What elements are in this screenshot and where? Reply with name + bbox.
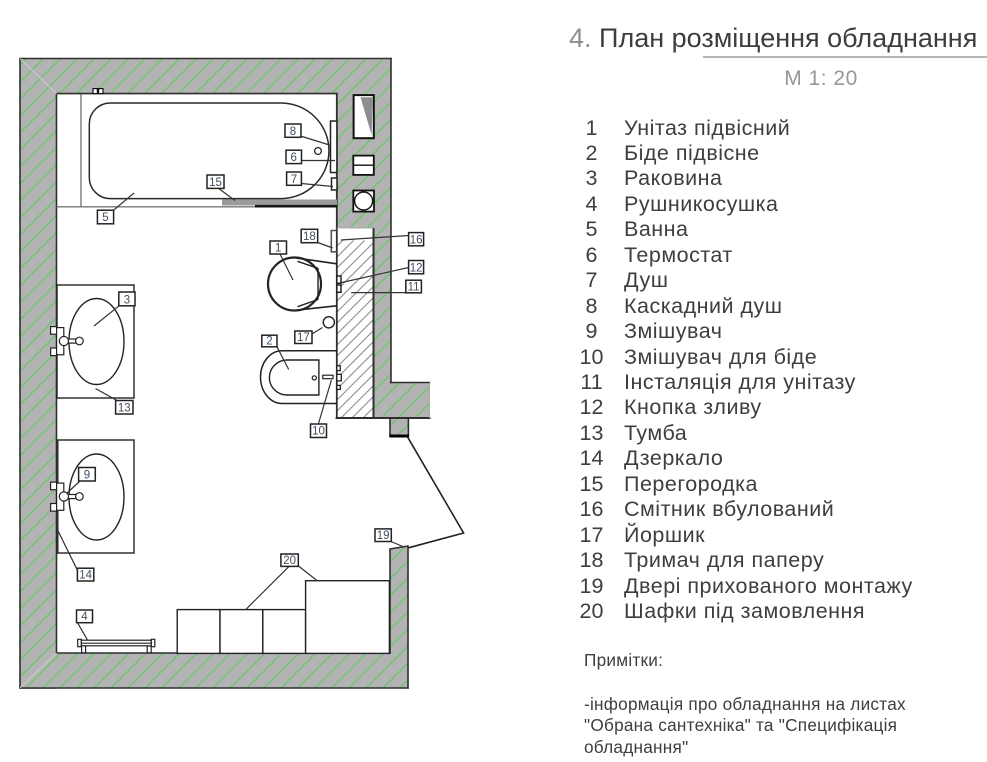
svg-text:9: 9 — [84, 470, 90, 482]
svg-text:20: 20 — [283, 555, 296, 567]
svg-text:12: 12 — [410, 262, 423, 274]
svg-text:14: 14 — [79, 570, 92, 582]
svg-text:19: 19 — [377, 530, 390, 542]
svg-text:3: 3 — [124, 294, 130, 306]
svg-text:18: 18 — [303, 231, 316, 243]
svg-text:7: 7 — [291, 174, 297, 186]
svg-text:8: 8 — [290, 126, 296, 138]
svg-text:6: 6 — [290, 152, 296, 164]
svg-text:11: 11 — [408, 281, 420, 293]
svg-text:2: 2 — [266, 335, 272, 347]
svg-text:5: 5 — [102, 212, 108, 224]
svg-text:1: 1 — [275, 243, 281, 255]
svg-text:17: 17 — [297, 332, 310, 344]
svg-text:10: 10 — [312, 426, 325, 438]
svg-text:15: 15 — [209, 177, 222, 189]
svg-text:13: 13 — [118, 403, 131, 415]
svg-text:4: 4 — [81, 611, 88, 623]
svg-text:16: 16 — [410, 234, 423, 246]
